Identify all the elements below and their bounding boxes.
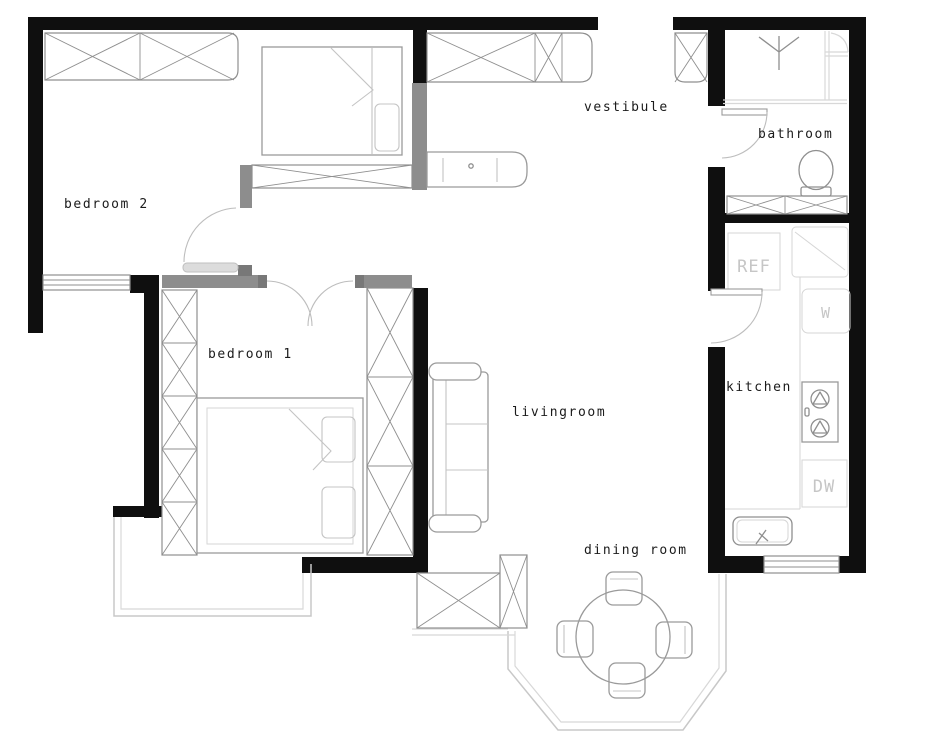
sofa-icon [429,363,488,532]
chair-icon [557,621,593,657]
bed-bedroom1-icon [197,398,363,553]
cabinet-vestibule [675,33,707,82]
dishwasher-box: DW [802,460,847,507]
chair-icon [656,622,692,658]
toilet-icon [799,151,833,197]
room-label-dining: dining room [584,543,688,558]
door-kitchen [711,289,762,343]
floor-plan: REF W DW bedroom 2 bedroom 1 vestibule [0,0,926,746]
window-kitchen [764,556,839,573]
wardrobe-bedroom1-west [162,290,197,555]
door-bedroom1-double [267,281,353,326]
room-label-bedroom-1: bedroom 1 [208,347,293,362]
door-bedroom2 [183,208,238,272]
cabinet-under-bed2 [252,165,412,188]
bed-bedroom2-icon [262,47,402,155]
wardrobe-vestibule-top [427,33,592,82]
dining-set [557,572,692,698]
stove-icon [802,382,838,442]
bathroom-vanity-cabinet [727,196,847,214]
washer-box: W [802,289,850,333]
cabinet-livingroom-corner [417,555,527,628]
washer-label: W [821,304,831,322]
bench-icon [427,152,527,187]
window-bedroom2 [43,275,130,290]
chair-icon [606,572,642,605]
floor-plan-drawing: REF W DW [0,0,926,746]
refrigerator-box: REF [728,233,780,290]
room-label-kitchen: kitchen [726,380,792,395]
corner-counter [792,227,848,277]
sink-icon [733,517,792,545]
room-label-livingroom: livingroom [512,405,606,420]
wardrobe-bedroom2-top [45,33,238,80]
dishwasher-label: DW [813,477,835,497]
room-label-bathroom: bathroom [758,127,833,142]
refrigerator-label: REF [737,257,771,277]
room-label-bedroom-2: bedroom 2 [64,197,149,212]
shower-icon [723,31,848,104]
wardrobe-bedroom1-east [367,288,413,555]
room-label-vestibule: vestibule [584,100,669,115]
